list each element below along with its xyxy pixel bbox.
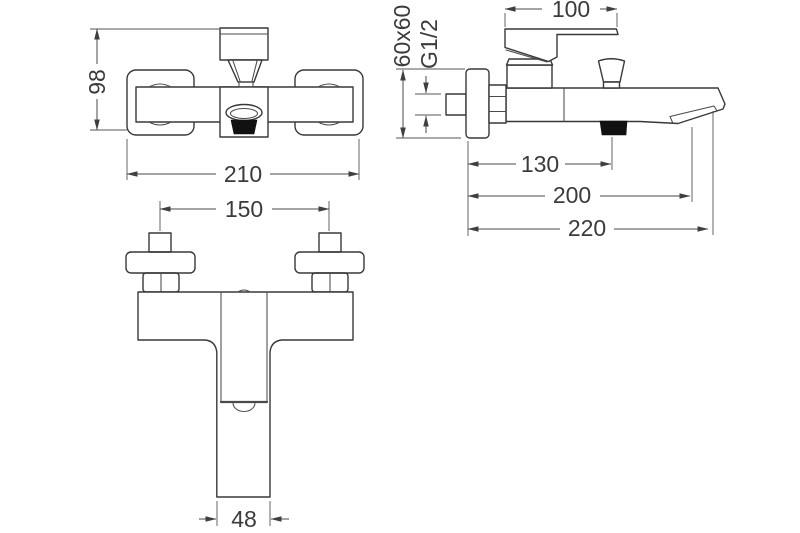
dim-210-label: 210: [224, 161, 262, 187]
side-union-nut: [489, 85, 506, 123]
side-dim-130: 130: [468, 137, 612, 177]
side-diverter-knob: [599, 59, 625, 82]
dim-200-label: 200: [553, 182, 591, 208]
dim-g12-label: G1/2: [416, 19, 442, 69]
top-left-connection: [126, 233, 195, 292]
top-dim-150: 150: [160, 196, 329, 231]
side-cartridge-base: [507, 65, 552, 88]
side-body-spout: [506, 88, 725, 124]
dim-130-label: 130: [521, 151, 559, 177]
technical-drawing-canvas: 98 210 150: [0, 0, 800, 533]
dim-220-label: 220: [568, 215, 606, 241]
front-view: 98 210: [84, 28, 363, 187]
dim-150-label: 150: [225, 196, 263, 222]
side-diverter-neck: [604, 82, 620, 88]
dim-48-label: 48: [231, 506, 257, 532]
dim-100-label: 100: [552, 0, 590, 22]
top-dim-48: 48: [199, 501, 289, 532]
top-view: 150 48: [126, 196, 364, 532]
top-body-and-spout: [138, 292, 353, 497]
front-handle: [220, 28, 268, 60]
front-spout-mouth: [231, 120, 257, 134]
dim-98-label: 98: [84, 69, 110, 95]
front-neck-base: [239, 82, 253, 87]
bath-mixer-technical-drawing: 98 210 150: [0, 0, 800, 533]
side-thread-stub: [446, 94, 466, 115]
side-view: 100 60x60 G1/2 130: [389, 0, 725, 241]
side-dim-100: 100: [505, 0, 617, 27]
side-dim-220: 220: [468, 111, 713, 241]
front-dim-210: 210: [127, 139, 359, 187]
side-escutcheon: [466, 69, 489, 138]
side-handle-lever: [505, 29, 618, 62]
dim-60x60-label: 60x60: [389, 5, 415, 68]
side-dim-200: 200: [468, 127, 692, 208]
side-dim-g12: G1/2: [415, 19, 442, 133]
side-shower-outlet: [600, 121, 627, 135]
top-right-connection: [295, 233, 364, 292]
